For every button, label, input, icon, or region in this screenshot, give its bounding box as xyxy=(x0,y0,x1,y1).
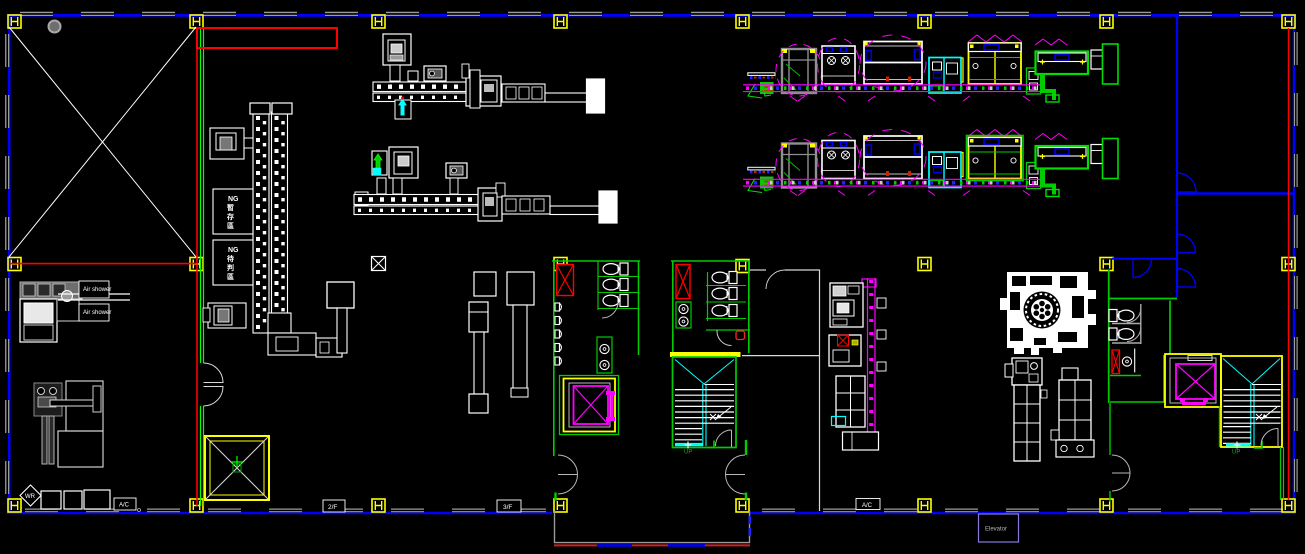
svg-text:3/F: 3/F xyxy=(503,504,512,511)
svg-text:Air shower: Air shower xyxy=(83,310,111,316)
svg-text:存: 存 xyxy=(227,212,234,221)
svg-text:WR: WR xyxy=(25,494,36,500)
svg-text:NG: NG xyxy=(228,247,239,254)
svg-text:Air shower: Air shower xyxy=(83,287,111,293)
svg-text:NG: NG xyxy=(228,196,239,203)
svg-text:A/C: A/C xyxy=(862,503,873,509)
svg-text:UP: UP xyxy=(1232,450,1240,456)
svg-text:A/C: A/C xyxy=(119,503,130,509)
svg-text:暫: 暫 xyxy=(227,203,234,212)
svg-text:待: 待 xyxy=(227,254,234,263)
svg-text:UP: UP xyxy=(684,450,692,456)
svg-text:判: 判 xyxy=(227,263,234,272)
svg-text:Elevator: Elevator xyxy=(985,527,1007,533)
svg-text:區: 區 xyxy=(227,272,234,281)
svg-text:2/F: 2/F xyxy=(328,504,337,511)
svg-text:區: 區 xyxy=(227,221,234,230)
